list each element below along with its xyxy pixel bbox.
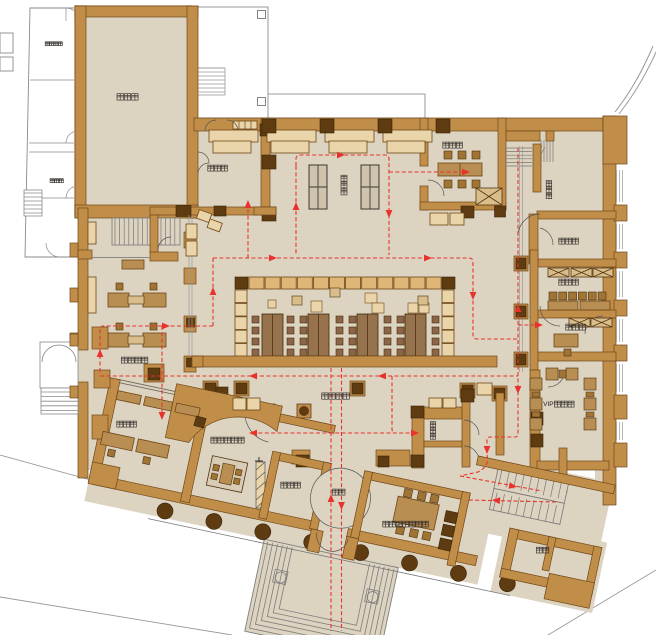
svg-text:VIP: VIP	[543, 401, 553, 408]
